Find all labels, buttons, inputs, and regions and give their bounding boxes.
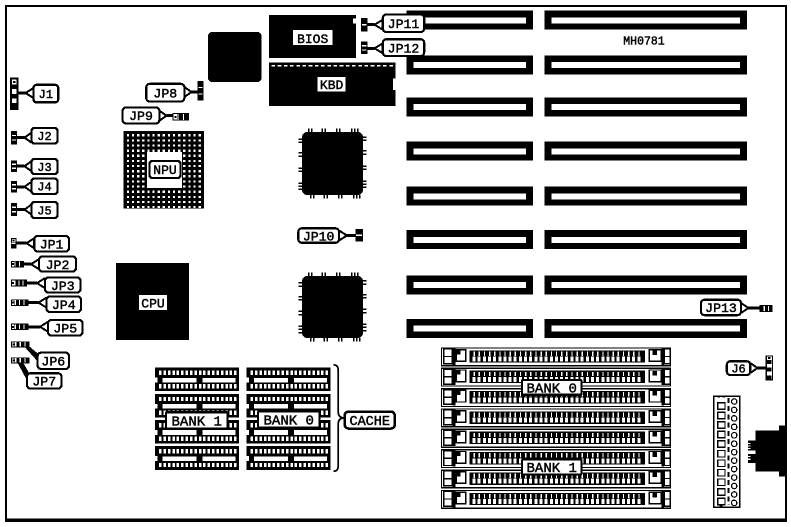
svg-text:KBD: KBD (320, 78, 344, 93)
svg-text:JP10: JP10 (303, 229, 335, 244)
svg-text:BANK 1: BANK 1 (172, 414, 222, 430)
svg-text:JP13: JP13 (705, 301, 737, 316)
svg-text:MH0781: MH0781 (623, 36, 665, 49)
svg-text:BIOS: BIOS (297, 32, 328, 47)
svg-text:BANK 0: BANK 0 (527, 381, 577, 397)
svg-text:JP1: JP1 (40, 238, 64, 253)
svg-text:BANK 0: BANK 0 (264, 414, 314, 430)
svg-text:J6: J6 (731, 362, 745, 376)
svg-text:J4: J4 (37, 181, 51, 195)
svg-text:J5: J5 (37, 204, 51, 218)
svg-text:JP5: JP5 (53, 322, 77, 337)
svg-text:JP3: JP3 (51, 279, 75, 294)
svg-text:JP6: JP6 (41, 355, 65, 370)
svg-text:JP7: JP7 (32, 375, 56, 390)
svg-text:NPU: NPU (153, 163, 176, 178)
svg-text:JP9: JP9 (129, 109, 153, 124)
svg-text:JP12: JP12 (388, 41, 420, 56)
svg-text:CPU: CPU (141, 296, 164, 311)
svg-text:J1: J1 (39, 88, 53, 102)
svg-text:JP2: JP2 (46, 258, 70, 273)
svg-text:BANK 1: BANK 1 (527, 461, 577, 477)
svg-text:J2: J2 (37, 130, 51, 144)
svg-text:J3: J3 (37, 161, 51, 175)
svg-text:JP4: JP4 (52, 298, 76, 313)
svg-text:JP8: JP8 (153, 86, 177, 101)
svg-text:CACHE: CACHE (349, 415, 390, 430)
svg-text:JP11: JP11 (388, 17, 420, 32)
